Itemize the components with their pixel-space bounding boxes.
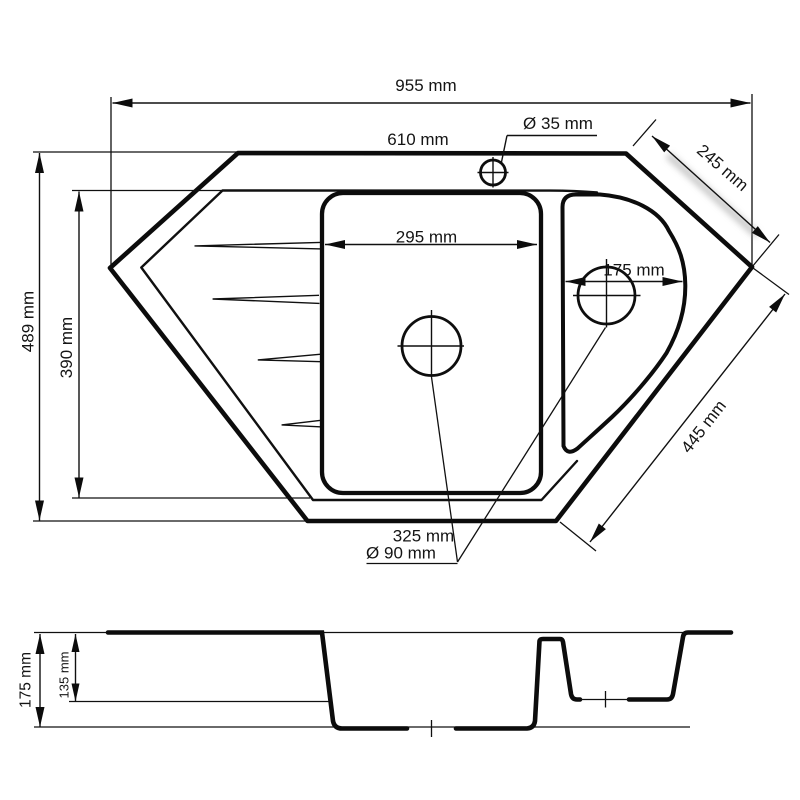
svg-text:Ø 35 mm: Ø 35 mm — [523, 114, 593, 133]
svg-text:Ø 90 mm: Ø 90 mm — [366, 544, 436, 563]
svg-text:955 mm: 955 mm — [395, 76, 456, 95]
svg-text:295 mm: 295 mm — [396, 228, 457, 247]
svg-text:489 mm: 489 mm — [19, 291, 38, 352]
svg-text:610 mm: 610 mm — [387, 130, 448, 149]
svg-text:390 mm: 390 mm — [57, 317, 76, 378]
svg-text:175 mm: 175 mm — [18, 652, 35, 708]
svg-text:445 mm: 445 mm — [677, 397, 730, 457]
svg-text:175 mm: 175 mm — [603, 261, 664, 280]
svg-text:135 mm: 135 mm — [57, 652, 72, 699]
